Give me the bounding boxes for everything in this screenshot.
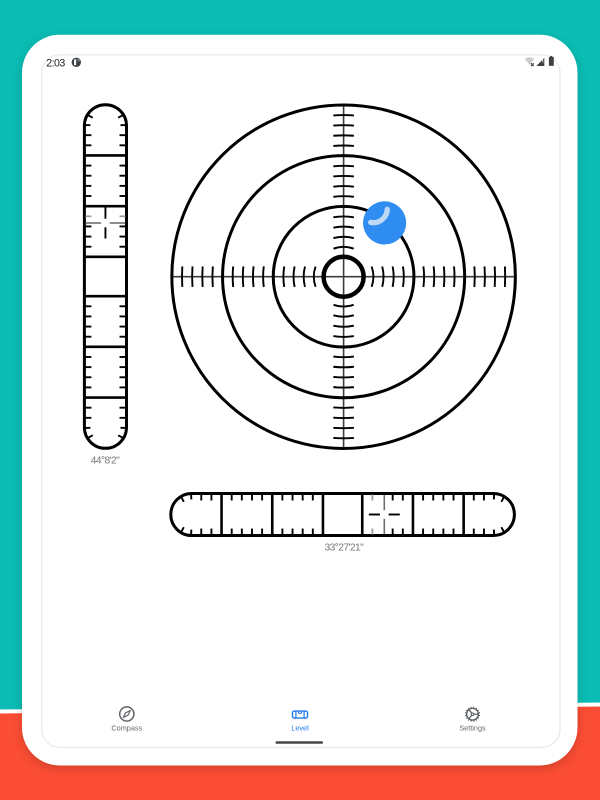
svg-text:Settings: Settings <box>459 724 486 733</box>
svg-text:44°8'2": 44°8'2" <box>91 455 120 466</box>
svg-text:2:03: 2:03 <box>46 57 65 69</box>
svg-text:Level: Level <box>291 724 309 733</box>
svg-text:33°27'21": 33°27'21" <box>324 542 364 553</box>
svg-text:Compass: Compass <box>111 724 142 733</box>
